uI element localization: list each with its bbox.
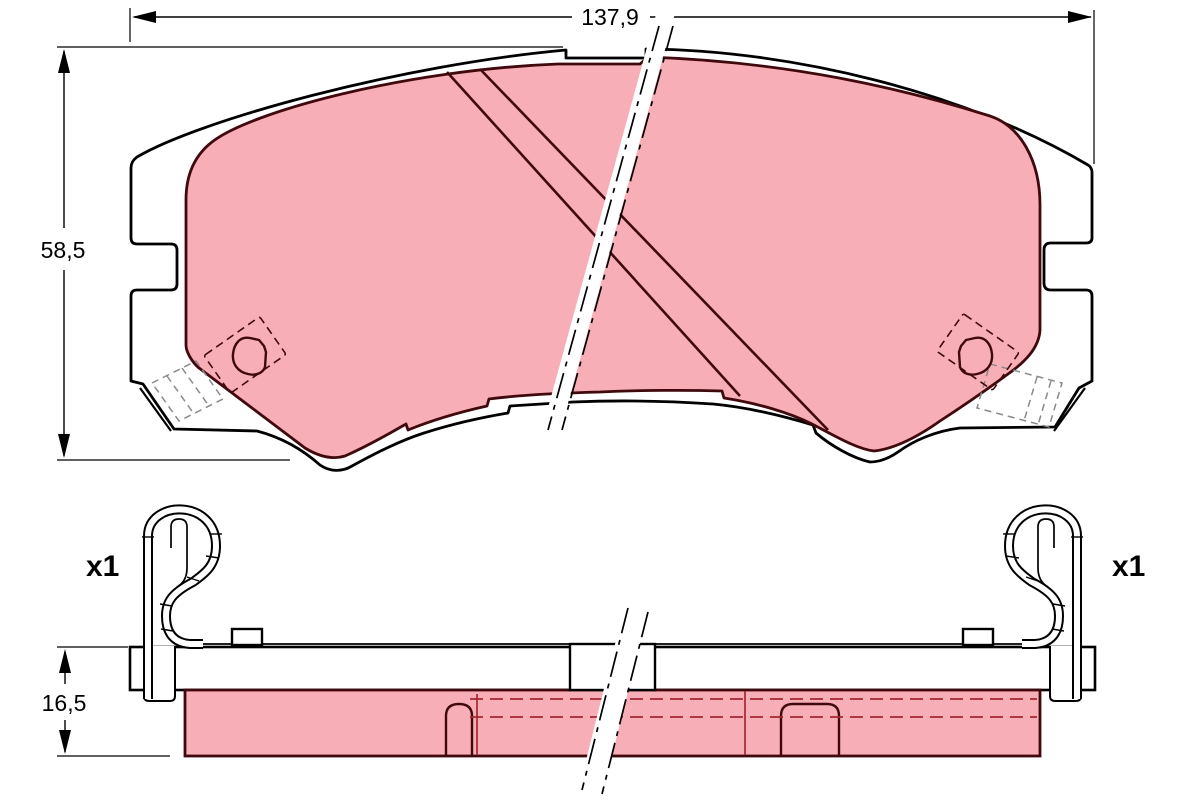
svg-text:16,5: 16,5	[42, 690, 87, 716]
svg-text:137,9: 137,9	[581, 4, 639, 30]
svg-text:58,5: 58,5	[41, 237, 86, 263]
svg-text:x1: x1	[86, 550, 119, 583]
svg-text:x1: x1	[1112, 550, 1145, 583]
